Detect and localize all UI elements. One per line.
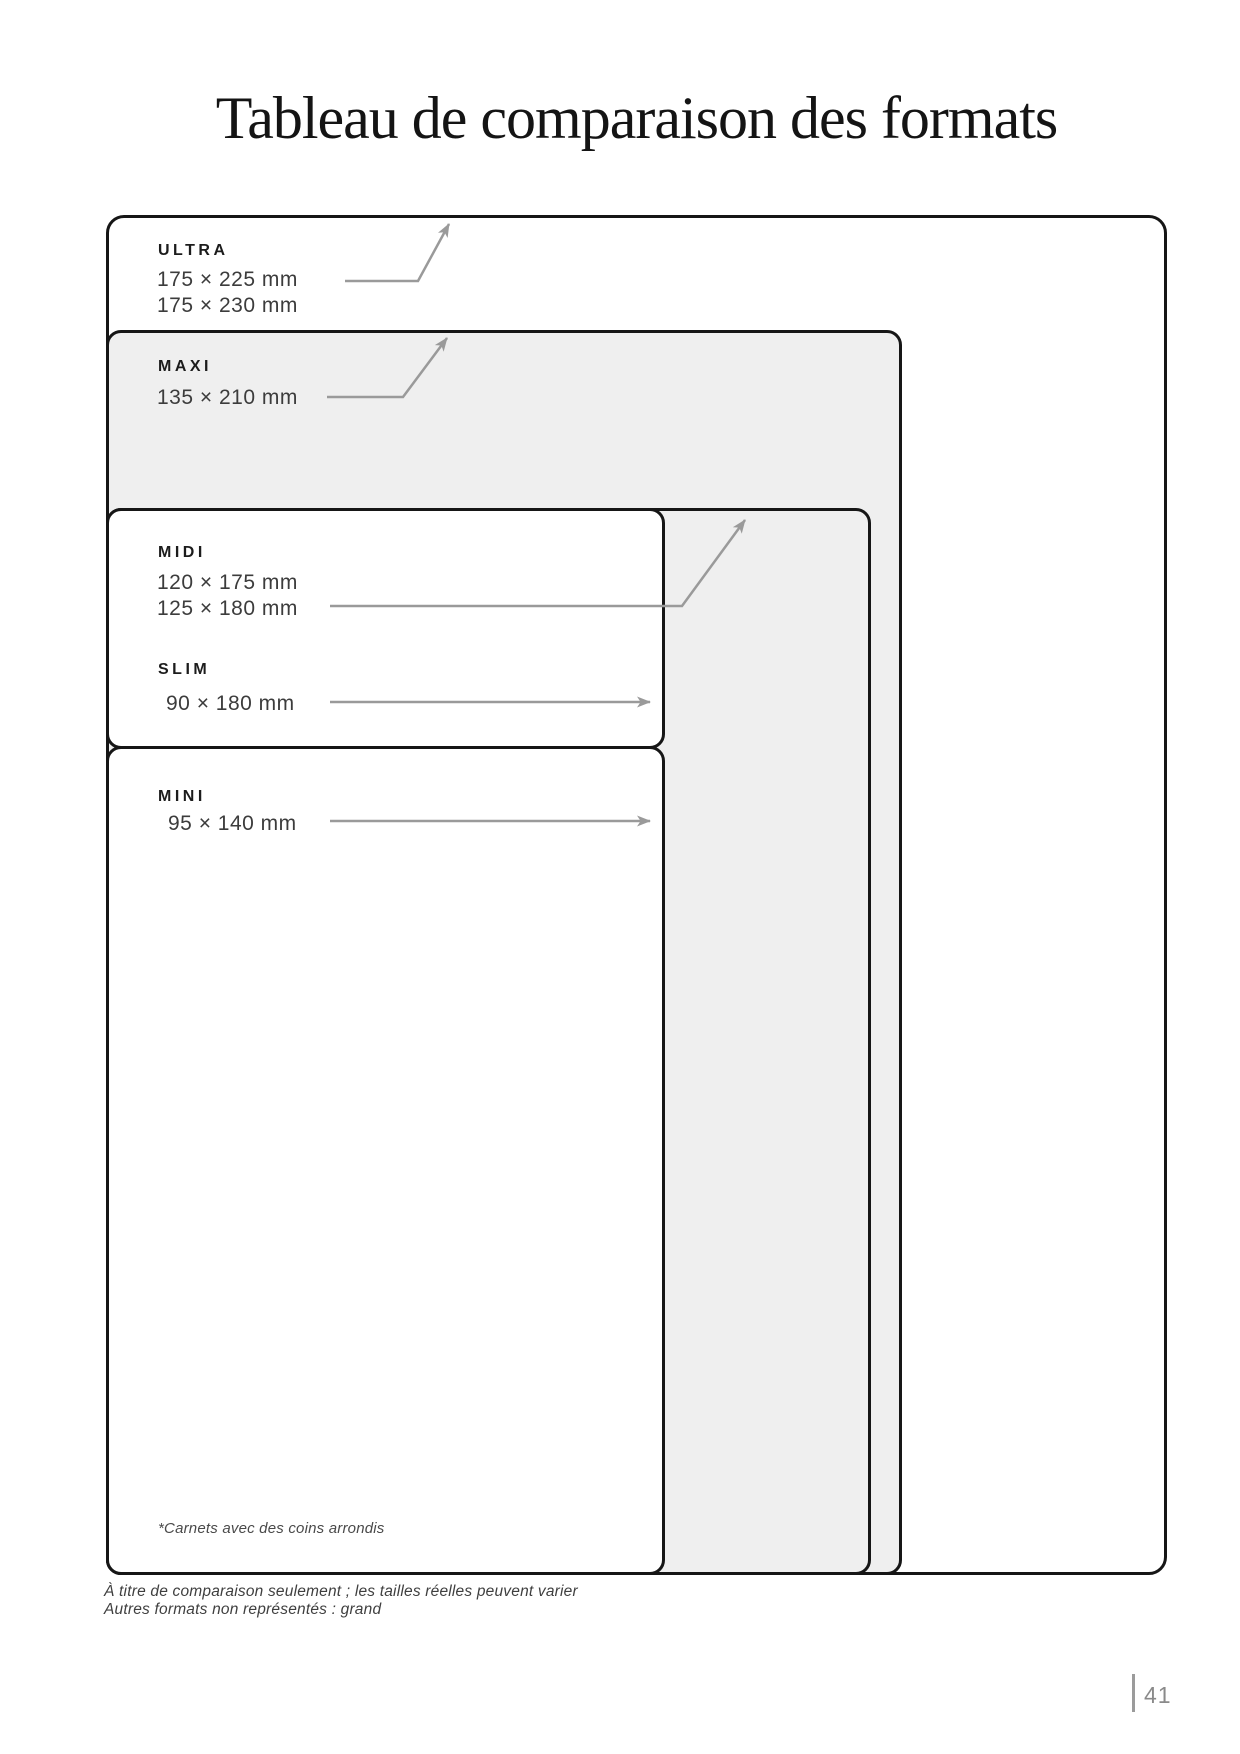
format-label-midi: MIDI [158, 544, 206, 562]
format-label-maxi: MAXI [158, 358, 212, 376]
page-title: Tableau de comparaison des formats [106, 84, 1167, 153]
catalog-page: Tableau de comparaison des formats ULTRA… [0, 0, 1240, 1754]
footer-note-line2: Autres formats non représentés : grand [104, 1601, 381, 1619]
rounded-corners-note: *Carnets avec des coins arrondis [158, 1520, 385, 1537]
format-label-mini: MINI [158, 788, 206, 806]
format-size-ultra-2: 175 × 230 mm [157, 294, 298, 318]
format-size-midi-2: 125 × 180 mm [157, 597, 298, 621]
format-size-maxi-1: 135 × 210 mm [157, 386, 298, 410]
format-size-mini-1: 95 × 140 mm [168, 812, 297, 836]
format-size-ultra-1: 175 × 225 mm [157, 268, 298, 292]
format-label-ultra: ULTRA [158, 242, 229, 260]
format-size-slim-1: 90 × 180 mm [166, 692, 295, 716]
format-label-slim: SLIM [158, 661, 210, 679]
format-box-mini [106, 746, 665, 1575]
format-size-midi-1: 120 × 175 mm [157, 571, 298, 595]
page-number: 41 [1144, 1682, 1172, 1709]
footer-note-line1: À titre de comparaison seulement ; les t… [104, 1583, 578, 1601]
page-number-divider [1132, 1674, 1135, 1712]
